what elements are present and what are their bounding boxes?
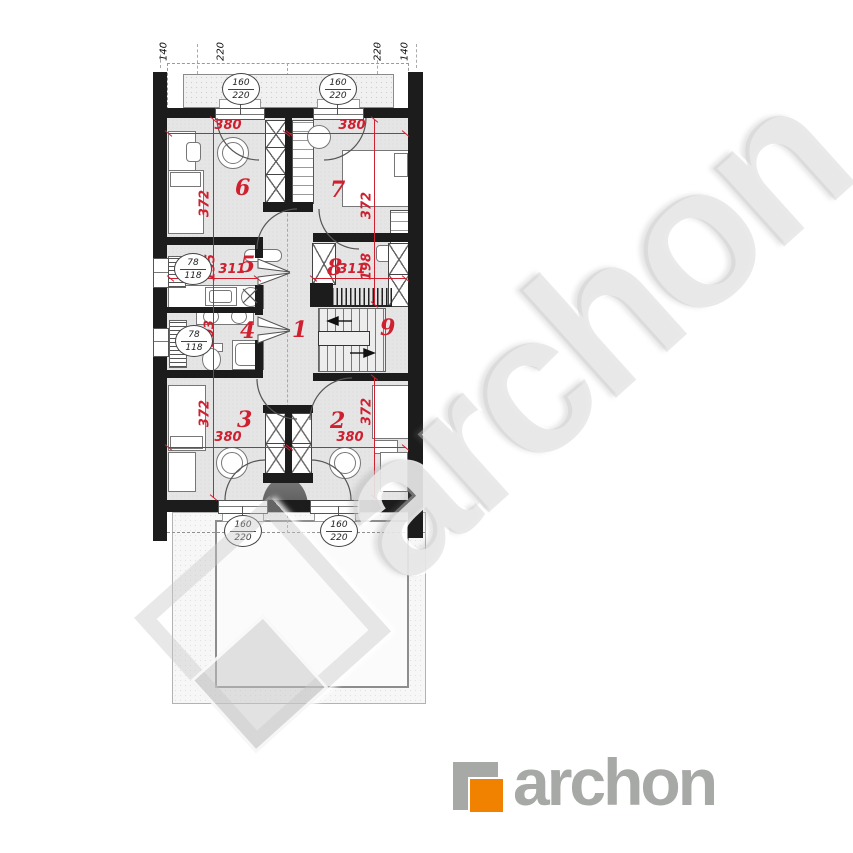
folding-door xyxy=(258,273,290,285)
marker-width: 160 xyxy=(325,77,351,90)
room-number-1: 1 xyxy=(292,317,307,343)
dimension-line xyxy=(289,447,406,448)
window-size-marker: 160 220 xyxy=(224,515,262,547)
stair-arrow-down xyxy=(364,349,374,357)
room-number-7: 7 xyxy=(330,177,345,203)
marker-height: 220 xyxy=(230,532,256,544)
stair-arrow-up xyxy=(328,317,338,325)
logo-orange-square xyxy=(468,777,505,814)
room-number-5: 5 xyxy=(240,252,255,278)
marker-width: 160 xyxy=(228,77,254,90)
small-window-size-marker: 78 118 xyxy=(175,325,213,357)
marker-height: 220 xyxy=(325,90,351,102)
marker-height: 220 xyxy=(228,90,254,102)
marker-height: 118 xyxy=(181,342,207,354)
small-window-size-marker: 78 118 xyxy=(174,253,212,285)
window-size-marker: 160 220 xyxy=(320,515,358,547)
door-arc xyxy=(257,209,297,249)
dim-label: 198 xyxy=(360,249,375,285)
folding-door xyxy=(258,259,290,272)
room-number-6: 6 xyxy=(235,175,250,201)
window-size-marker: 160 220 xyxy=(222,73,260,105)
dim-label: 372 xyxy=(360,394,375,430)
marker-width: 78 xyxy=(181,329,207,342)
marker-width: 160 xyxy=(326,519,352,532)
door-arc xyxy=(319,209,359,249)
dim-label: 372 xyxy=(360,188,375,224)
door-arc xyxy=(257,379,297,419)
folding-door xyxy=(258,317,290,330)
folding-door xyxy=(258,331,290,343)
floor-plan-page: 140 220 220 140 xyxy=(0,0,853,853)
marker-width: 78 xyxy=(180,257,206,270)
dim-label: 380 xyxy=(322,118,382,133)
room-number-8: 8 xyxy=(327,255,342,281)
dim-label: 372 xyxy=(198,396,213,432)
marker-width: 160 xyxy=(230,519,256,532)
room-number-9: 9 xyxy=(380,315,395,341)
dimension-line xyxy=(168,133,287,134)
marker-height: 118 xyxy=(180,270,206,282)
dim-label: 372 xyxy=(198,186,213,222)
room-number-3: 3 xyxy=(237,407,252,433)
room-number-4: 4 xyxy=(240,318,255,344)
logo-wordmark: archon xyxy=(513,744,715,820)
marker-height: 220 xyxy=(326,532,352,544)
dim-label: 380 xyxy=(198,118,258,133)
door-arc xyxy=(225,460,265,500)
archon-logo: archon xyxy=(453,744,773,824)
dimension-line xyxy=(168,447,287,448)
window-size-marker: 160 220 xyxy=(319,73,357,105)
door-arc xyxy=(311,460,351,500)
dim-label: 380 xyxy=(320,430,380,445)
door-swings-layer xyxy=(0,0,853,853)
dimension-line xyxy=(289,133,406,134)
room-number-2: 2 xyxy=(330,408,345,434)
